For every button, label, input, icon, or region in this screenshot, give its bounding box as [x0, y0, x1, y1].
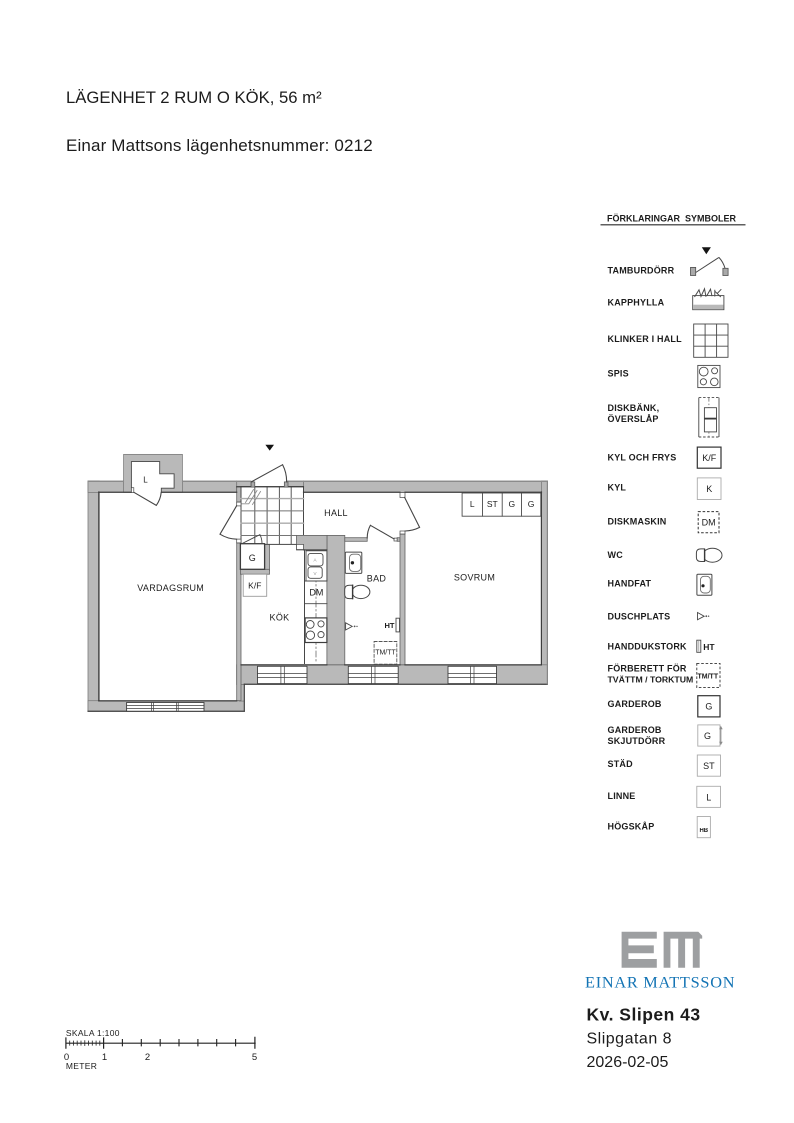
svg-text:K: K: [706, 484, 712, 494]
svg-text:METER: METER: [66, 1061, 97, 1071]
svg-text:2: 2: [145, 1052, 150, 1063]
svg-text:SKALA 1:100: SKALA 1:100: [66, 1028, 120, 1038]
svg-text:2026-02-05: 2026-02-05: [587, 1054, 669, 1071]
svg-text:ÖVERSLÅP: ÖVERSLÅP: [608, 414, 659, 424]
svg-text:HB: HB: [699, 828, 708, 834]
svg-text:TM/TT: TM/TT: [375, 649, 396, 656]
svg-text:STÄD: STÄD: [608, 759, 634, 769]
svg-text:A: A: [313, 558, 316, 563]
svg-text:K/F: K/F: [248, 581, 261, 591]
svg-text:DM: DM: [309, 588, 323, 598]
svg-text:G: G: [508, 499, 515, 509]
svg-text:HT: HT: [703, 642, 715, 652]
svg-text:G: G: [249, 553, 256, 563]
svg-text:G: G: [528, 499, 535, 509]
svg-text:DISKMASKIN: DISKMASKIN: [608, 517, 667, 527]
svg-text:EINAR MATTSSON: EINAR MATTSSON: [585, 973, 735, 992]
svg-text:HANDFAT: HANDFAT: [608, 579, 652, 589]
svg-text:SPIS: SPIS: [608, 369, 629, 379]
svg-text:VARDAGSRUM: VARDAGSRUM: [137, 583, 204, 593]
svg-text:FÖRBERETT FÖR: FÖRBERETT FÖR: [608, 664, 687, 674]
svg-text:1: 1: [102, 1052, 107, 1063]
svg-text:HT: HT: [385, 621, 395, 630]
svg-text:HALL: HALL: [324, 508, 348, 518]
svg-text:KAPPHYLLA: KAPPHYLLA: [608, 298, 665, 308]
svg-text:V: V: [313, 571, 316, 576]
svg-text:SKJUTDÖRR: SKJUTDÖRR: [608, 736, 666, 746]
svg-text:GARDEROB: GARDEROB: [608, 725, 662, 735]
svg-text:L: L: [470, 499, 475, 509]
svg-text:G: G: [704, 731, 711, 741]
svg-text:TVÄTTM / TORKTUM: TVÄTTM / TORKTUM: [608, 675, 694, 685]
svg-text:TAMBURDÖRR: TAMBURDÖRR: [608, 266, 675, 276]
svg-text:KYL OCH FRYS: KYL OCH FRYS: [608, 453, 677, 463]
svg-text:TM/TT: TM/TT: [698, 674, 719, 681]
svg-text:L: L: [143, 476, 148, 485]
svg-text:SOVRUM: SOVRUM: [454, 573, 495, 583]
svg-text:DUSCHPLATS: DUSCHPLATS: [608, 612, 671, 622]
svg-text:5: 5: [252, 1052, 257, 1063]
svg-text:WC: WC: [608, 550, 624, 560]
svg-text:DISKBÄNK,: DISKBÄNK,: [608, 403, 660, 413]
svg-text:GARDEROB: GARDEROB: [608, 699, 662, 709]
svg-text:Einar Mattsons lägenhetsnummer: Einar Mattsons lägenhetsnummer: 0212: [66, 136, 373, 155]
svg-text:KYL: KYL: [608, 483, 627, 493]
svg-text:LÄGENHET 2 RUM O KÖK, 56 m²: LÄGENHET 2 RUM O KÖK, 56 m²: [66, 88, 322, 107]
svg-text:FÖRKLARINGAR SYMBOLER: FÖRKLARINGAR SYMBOLER: [607, 214, 736, 224]
svg-text:ST: ST: [487, 499, 498, 509]
svg-text:L: L: [706, 792, 711, 802]
svg-text:Kv. Slipen 43: Kv. Slipen 43: [587, 1004, 701, 1024]
svg-text:ST: ST: [703, 761, 715, 771]
svg-text:DM: DM: [702, 518, 716, 528]
svg-text:G: G: [705, 702, 712, 712]
svg-text:HANDDUKSTORK: HANDDUKSTORK: [608, 642, 688, 652]
svg-text:KÖK: KÖK: [270, 613, 290, 623]
svg-text:HÖGSKÅP: HÖGSKÅP: [608, 822, 655, 832]
svg-text:BAD: BAD: [367, 574, 387, 584]
svg-text:LINNE: LINNE: [608, 791, 636, 801]
svg-text:K/F: K/F: [702, 453, 717, 463]
svg-text:Slipgatan 8: Slipgatan 8: [587, 1031, 673, 1048]
svg-text:KLINKER I HALL: KLINKER I HALL: [608, 334, 683, 344]
